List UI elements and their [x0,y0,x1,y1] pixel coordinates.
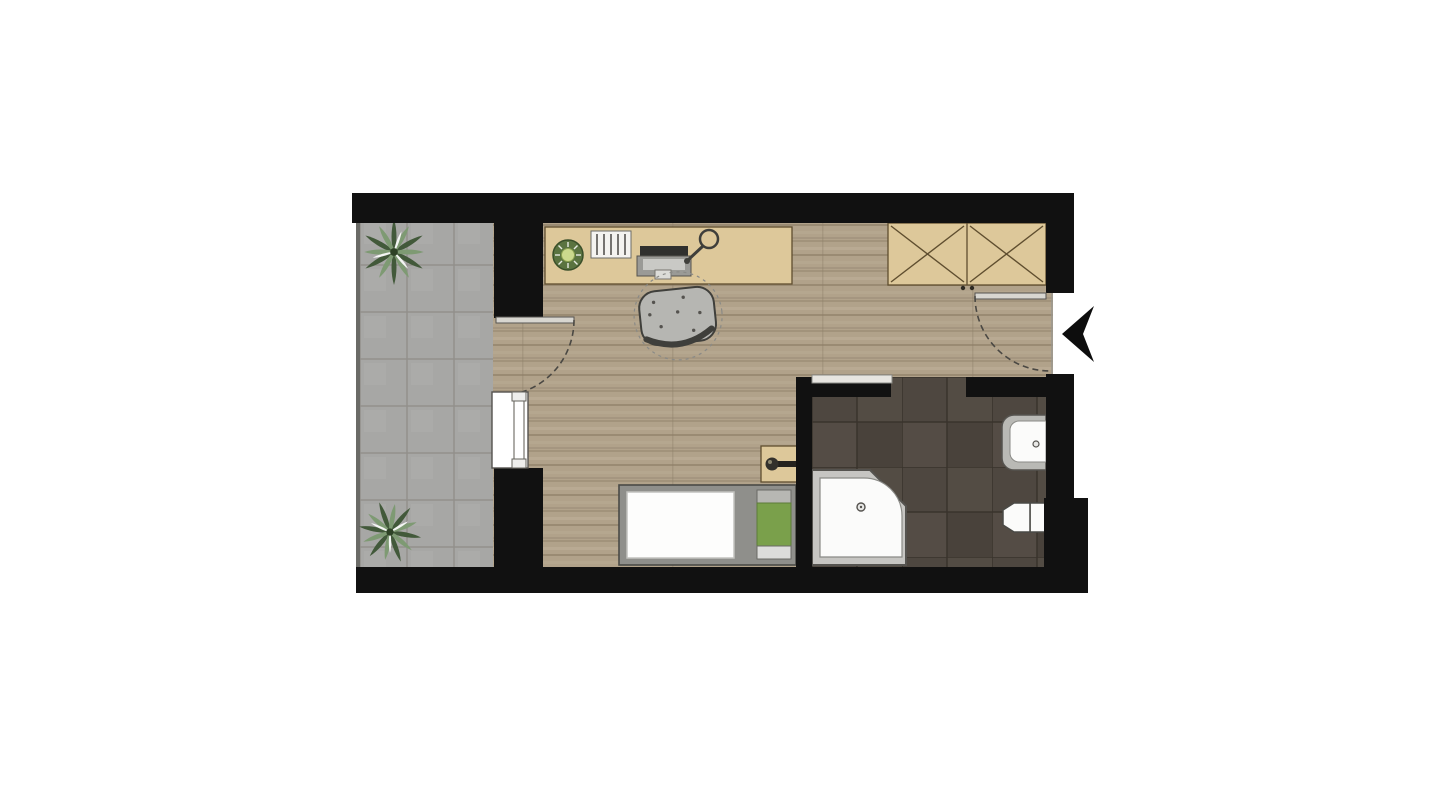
nightstand [761,446,798,482]
bathroom-doorway-floor [891,377,966,397]
balcony-window [492,392,528,468]
toilet [1003,503,1046,532]
bed-pillow [757,490,791,559]
wall-top [352,193,1074,223]
balcony-door-leaf [496,317,574,323]
bed [619,485,796,565]
document-tray-icon [591,231,631,258]
desk [545,227,792,284]
balcony-floor [360,218,500,567]
washbasin [1002,415,1046,470]
wall-bottom [356,567,1088,593]
wall-right-upper [1046,193,1074,293]
balcony-railing [356,218,360,567]
entry-door-leaf [975,293,1046,299]
wall-right-mid [1046,374,1074,498]
floor-plan [0,0,1440,788]
wall-balcony-lower [494,468,543,567]
desk-plant-icon [553,240,583,270]
wall-balcony-upper [494,193,543,318]
bed-duvet [627,492,734,558]
entry-arrow-icon [1062,306,1094,362]
wall-bathroom-left [796,377,812,567]
wall-bathroom-top-right [966,377,1046,397]
wardrobe [888,223,1046,290]
bathroom-sliding-door [812,375,892,383]
floorplan-canvas [0,0,1440,788]
